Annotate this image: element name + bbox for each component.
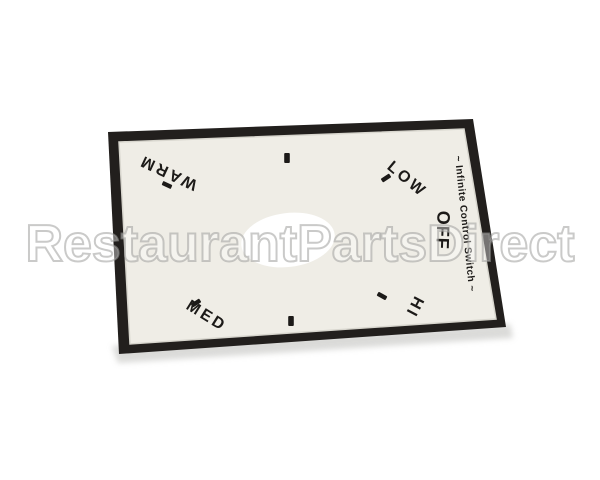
tick-top [284,153,290,163]
decal-photo: WARM LOW MED HI OFF ~ Infinite Control S… [0,0,600,480]
label-off: OFF [432,210,453,250]
product-photo: WARM LOW MED HI OFF ~ Infinite Control S… [0,0,600,480]
tick-bottom [288,316,294,326]
